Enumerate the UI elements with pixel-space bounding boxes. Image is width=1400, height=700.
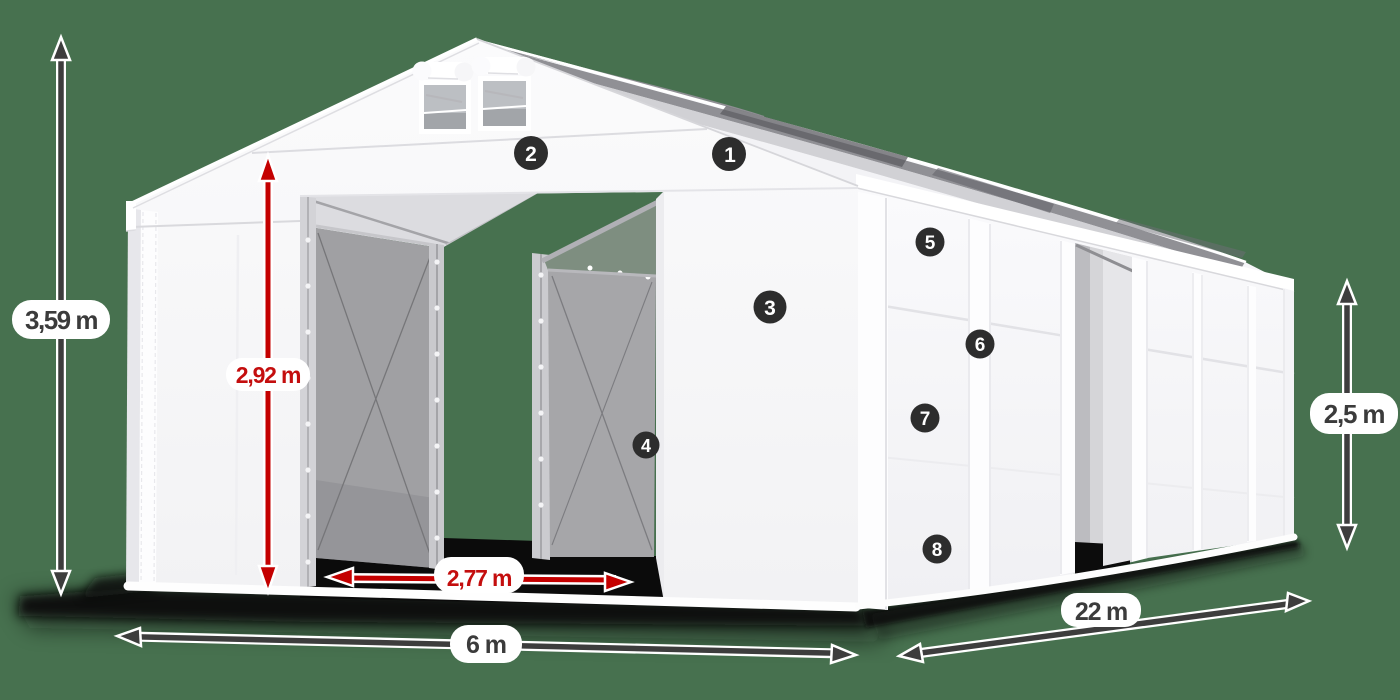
svg-text:4: 4 xyxy=(641,436,651,456)
svg-text:7: 7 xyxy=(920,409,931,430)
svg-text:2: 2 xyxy=(525,143,537,166)
svg-text:3: 3 xyxy=(764,297,776,320)
svg-text:2,77 m: 2,77 m xyxy=(447,565,512,591)
svg-text:2,5 m: 2,5 m xyxy=(1324,399,1385,429)
svg-text:22 m: 22 m xyxy=(1075,598,1127,626)
svg-text:2,92 m: 2,92 m xyxy=(236,362,301,388)
svg-text:1: 1 xyxy=(724,144,736,167)
svg-text:3,59 m: 3,59 m xyxy=(25,305,97,335)
svg-text:6 m: 6 m xyxy=(466,631,506,659)
svg-text:8: 8 xyxy=(932,540,943,561)
svg-text:6: 6 xyxy=(975,335,986,356)
svg-text:5: 5 xyxy=(925,233,936,254)
